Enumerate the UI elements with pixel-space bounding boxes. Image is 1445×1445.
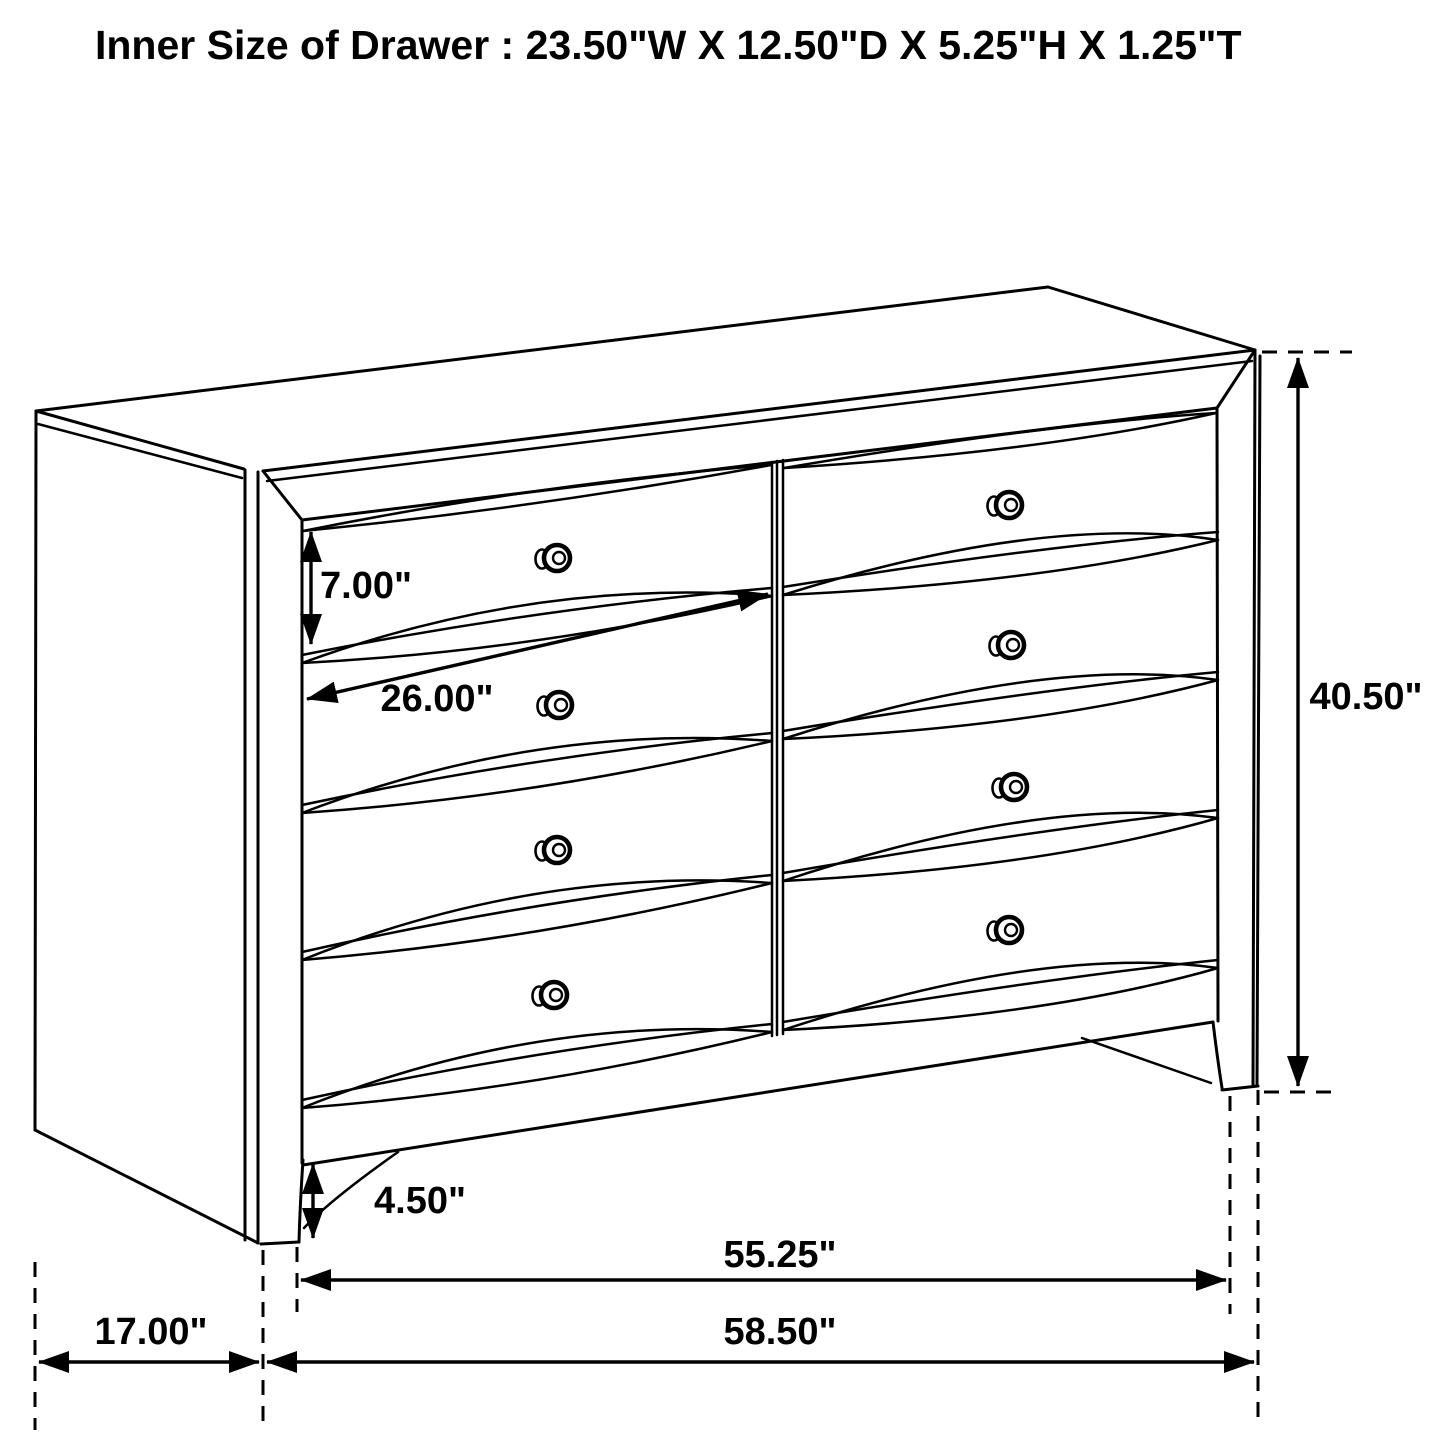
dim-label-foot-clearance: 4.50" [374, 1180, 466, 1222]
drawer-knobs [533, 492, 1028, 1008]
dimension-annotations: 7.00" 26.00" 40.50" 4.50" 55.25" [35, 352, 1423, 1430]
drawer-knob [990, 632, 1025, 658]
dim-overall-height: 40.50" [1262, 352, 1423, 1092]
dim-label-front-width: 55.25" [723, 1234, 836, 1276]
dresser-dimension-diagram: 7.00" 26.00" 40.50" 4.50" 55.25" [0, 0, 1445, 1445]
drawer-knob [536, 545, 571, 571]
top-surface [36, 287, 1255, 520]
dim-foot-clearance: 4.50" [313, 1164, 466, 1238]
dim-depth: 17.00" [35, 1262, 259, 1430]
drawer-knob [988, 492, 1023, 518]
drawer-knob [533, 982, 568, 1008]
drawer-divider [772, 460, 783, 1036]
drawer-knob [988, 917, 1023, 943]
diagram-canvas: Inner Size of Drawer : 23.50"W X 12.50"D… [0, 0, 1445, 1445]
side-panel [35, 411, 258, 1243]
dim-label-drawer-front-height: 7.00" [320, 565, 412, 607]
front-frame [302, 351, 1260, 1163]
dresser-line-drawing [35, 287, 1260, 1244]
dim-label-drawer-width: 26.00" [380, 678, 493, 720]
drawer-knob [538, 692, 573, 718]
right-foot [1082, 1022, 1258, 1090]
dim-label-overall-width: 58.50" [723, 1311, 836, 1353]
drawer-knob [536, 837, 571, 863]
drawer-knob [993, 774, 1028, 800]
dim-label-overall-height: 40.50" [1309, 676, 1422, 718]
dim-drawer-front-height: 7.00" [311, 532, 412, 644]
dim-label-depth: 17.00" [94, 1311, 207, 1353]
